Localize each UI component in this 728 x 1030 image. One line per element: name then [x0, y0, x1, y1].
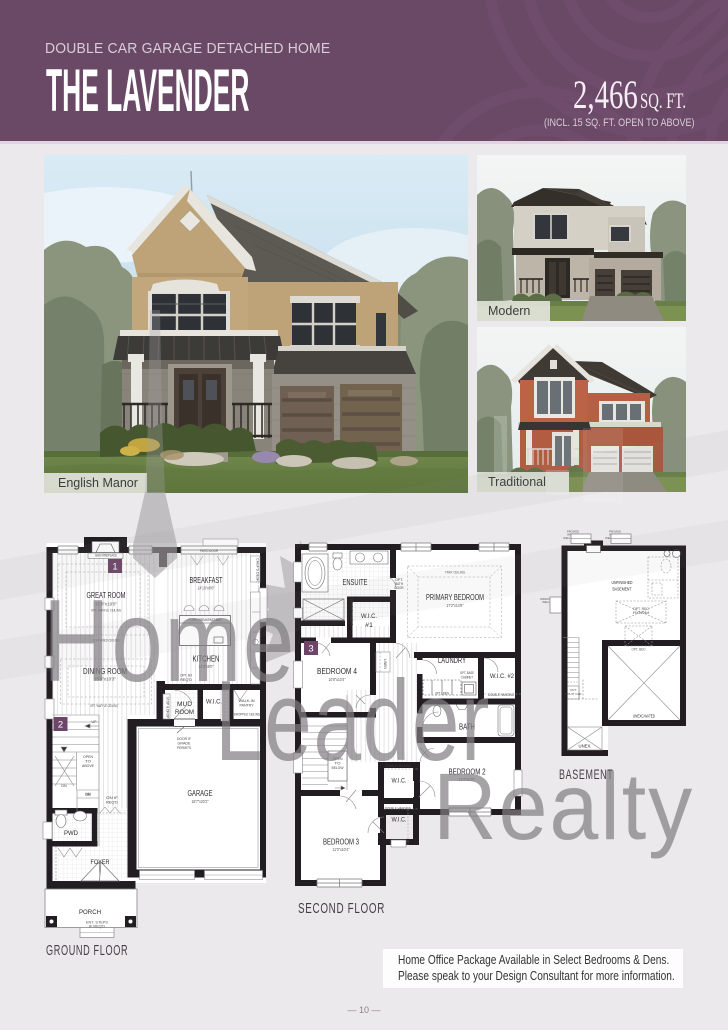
svg-text:11'0"x10'4": 11'0"x10'4"	[333, 847, 350, 852]
svg-text:2: 2	[58, 720, 63, 731]
svg-text:ROOM: ROOM	[175, 709, 194, 716]
svg-text:18'7"x20'2": 18'7"x20'2"	[192, 799, 209, 804]
svg-text:DOUBLE HANGING: DOUBLE HANGING	[350, 600, 354, 626]
svg-text:PATIO DOOR: PATIO DOOR	[200, 549, 218, 553]
svg-text:GRADE: GRADE	[178, 742, 192, 746]
svg-text:ABOVE: ABOVE	[82, 764, 94, 768]
svg-text:IF REQ'D: IF REQ'D	[89, 925, 105, 929]
svg-text:#1: #1	[365, 622, 373, 629]
svg-text:1: 1	[112, 562, 117, 573]
svg-text:TRAY CEILING: TRAY CEILING	[445, 571, 465, 575]
svg-text:17'2"x14'8": 17'2"x14'8"	[447, 603, 464, 608]
svg-text:UNEXCAVATED: UNEXCAVATED	[633, 714, 655, 719]
svg-text:DOOR IF: DOOR IF	[177, 737, 192, 741]
svg-text:FRUIT CLR: FRUIT CLR	[565, 692, 582, 696]
svg-text:BEDROOM 3: BEDROOM 3	[323, 838, 359, 847]
svg-text:GARAGE: GARAGE	[188, 789, 213, 798]
svg-text:OPT. BED: OPT. BED	[632, 648, 647, 652]
svg-text:ROOM: ROOM	[633, 611, 650, 615]
svg-text:GAS FIREPLACE: GAS FIREPLACE	[95, 554, 118, 558]
svg-text:DN: DN	[61, 784, 67, 788]
svg-text:BASEMENT: BASEMENT	[613, 587, 632, 593]
svg-text:W.I.C.: W.I.C.	[392, 817, 407, 824]
svg-text:FOYER: FOYER	[91, 859, 110, 866]
svg-text:UNFINISHED: UNFINISHED	[612, 580, 633, 586]
svg-text:3: 3	[308, 644, 313, 655]
svg-text:ENSUITE: ENSUITE	[343, 578, 368, 587]
svg-text:W.I.C. #2: W.I.C. #2	[490, 673, 514, 680]
svg-text:DOOR: DOOR	[395, 586, 405, 590]
svg-text:DN: DN	[85, 793, 91, 797]
svg-text:OPEN: OPEN	[83, 755, 93, 759]
svg-text:PORCH: PORCH	[79, 909, 101, 916]
svg-text:WELL: WELL	[542, 600, 550, 604]
svg-text:W.I.C.: W.I.C.	[361, 613, 377, 620]
svg-text:DOUBLE HANGING: DOUBLE HANGING	[488, 693, 514, 697]
svg-text:TO: TO	[85, 760, 91, 764]
svg-text:REQ'D: REQ'D	[106, 801, 118, 805]
svg-text:UNEX.: UNEX.	[579, 744, 592, 749]
svg-text:DOUBLE HANGING: DOUBLE HANGING	[385, 807, 411, 811]
svg-text:PRIMARY BEDROOM: PRIMARY BEDROOM	[426, 593, 484, 602]
svg-text:PWD: PWD	[64, 830, 78, 837]
svg-text:UP: UP	[92, 720, 98, 724]
svg-text:PERMITS: PERMITS	[177, 746, 192, 750]
svg-text:ON IF: ON IF	[106, 796, 119, 800]
